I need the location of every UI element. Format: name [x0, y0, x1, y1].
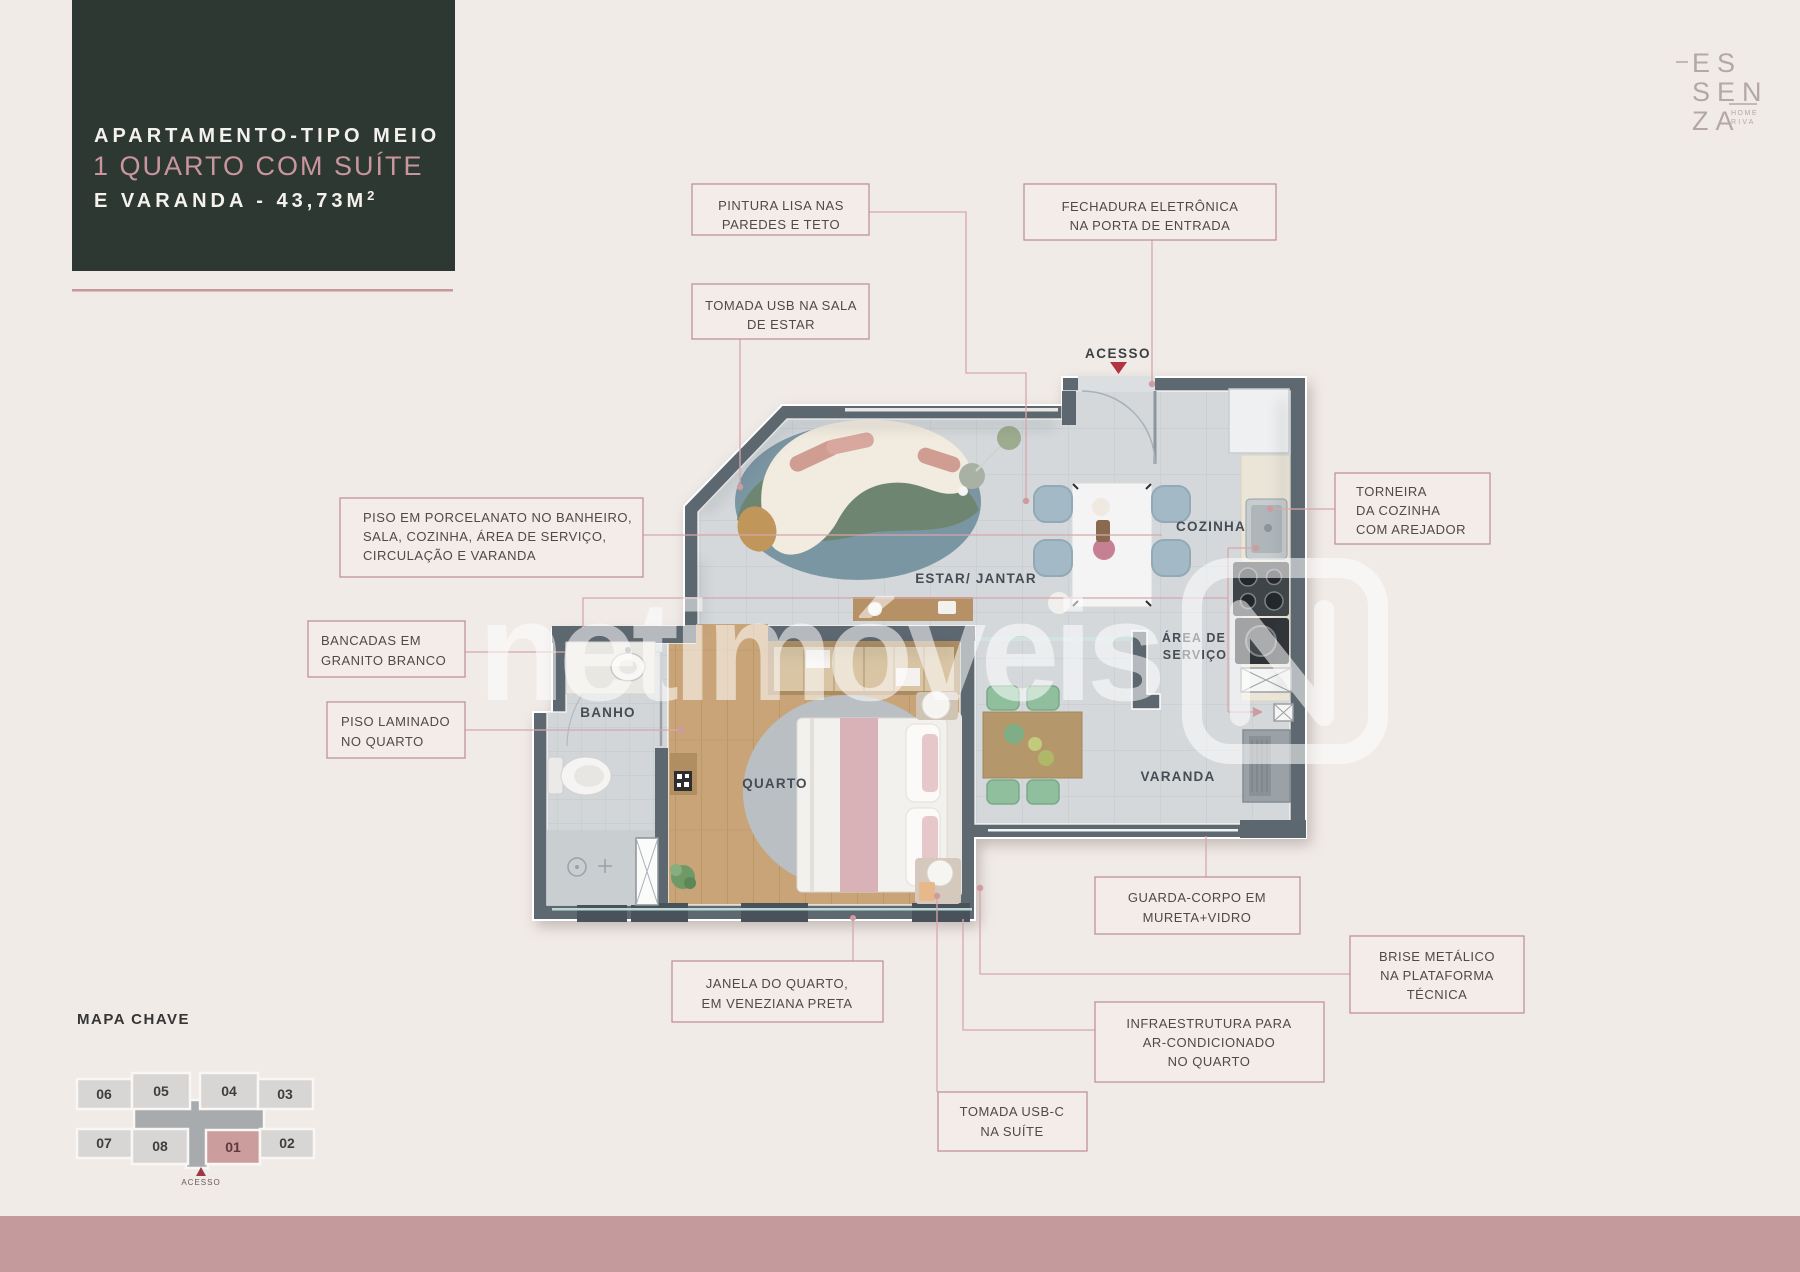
svg-text:NA PLATAFORMA: NA PLATAFORMA — [1380, 968, 1494, 983]
svg-text:TOMADA USB NA SALA: TOMADA USB NA SALA — [705, 298, 857, 313]
svg-text:TÉCNICA: TÉCNICA — [1407, 987, 1468, 1002]
svg-text:NO QUARTO: NO QUARTO — [341, 734, 424, 749]
svg-text:JANELA DO QUARTO,: JANELA DO QUARTO, — [706, 976, 848, 991]
svg-text:05: 05 — [153, 1083, 169, 1099]
svg-text:INFRAESTRUTURA PARA: INFRAESTRUTURA PARA — [1126, 1016, 1291, 1031]
svg-text:06: 06 — [96, 1086, 112, 1102]
svg-text:APARTAMENTO-TIPO MEIO: APARTAMENTO-TIPO MEIO — [94, 125, 440, 147]
svg-text:03: 03 — [277, 1086, 293, 1102]
svg-text:CIRCULAÇÃO E VARANDA: CIRCULAÇÃO E VARANDA — [363, 548, 536, 563]
svg-text:SEN: SEN — [1692, 77, 1769, 107]
svg-text:netimóveis: netimóveis — [478, 572, 1161, 731]
svg-text:1 QUARTO COM SUÍTE: 1 QUARTO COM SUÍTE — [93, 151, 424, 181]
svg-text:RIVA: RIVA — [1731, 119, 1756, 126]
svg-text:VARANDA: VARANDA — [1141, 769, 1216, 784]
svg-text:HOME: HOME — [1731, 110, 1758, 117]
svg-text:FECHADURA ELETRÔNICA: FECHADURA ELETRÔNICA — [1062, 199, 1239, 214]
svg-text:EM VENEZIANA PRETA: EM VENEZIANA PRETA — [701, 996, 852, 1011]
svg-text:02: 02 — [279, 1135, 295, 1151]
svg-text:AR-CONDICIONADO: AR-CONDICIONADO — [1143, 1035, 1275, 1050]
svg-text:ACESSO: ACESSO — [1085, 346, 1151, 361]
svg-text:01: 01 — [225, 1139, 241, 1155]
svg-text:PINTURA LISA NAS: PINTURA LISA NAS — [718, 198, 844, 213]
svg-text:GUARDA-CORPO EM: GUARDA-CORPO EM — [1128, 890, 1266, 905]
svg-text:04: 04 — [221, 1083, 237, 1099]
svg-text:GRANITO BRANCO: GRANITO BRANCO — [321, 653, 446, 668]
svg-text:ACESSO: ACESSO — [181, 1178, 220, 1187]
svg-text:08: 08 — [152, 1138, 168, 1154]
svg-text:E VARANDA - 43,73M2: E VARANDA - 43,73M2 — [94, 188, 378, 212]
svg-text:TORNEIRA: TORNEIRA — [1356, 484, 1427, 499]
svg-text:SALA, COZINHA, ÁREA DE SERVIÇO: SALA, COZINHA, ÁREA DE SERVIÇO, — [363, 529, 607, 544]
svg-text:NO QUARTO: NO QUARTO — [1168, 1054, 1251, 1069]
svg-text:ES: ES — [1692, 48, 1742, 78]
svg-text:PISO EM PORCELANATO NO BANHEIR: PISO EM PORCELANATO NO BANHEIRO, — [363, 510, 632, 525]
svg-text:COM AREJADOR: COM AREJADOR — [1356, 522, 1466, 537]
svg-text:NA PORTA DE ENTRADA: NA PORTA DE ENTRADA — [1070, 218, 1231, 233]
svg-text:07: 07 — [96, 1135, 112, 1151]
svg-text:MURETA+VIDRO: MURETA+VIDRO — [1143, 910, 1252, 925]
svg-text:DA COZINHA: DA COZINHA — [1356, 503, 1440, 518]
svg-text:QUARTO: QUARTO — [742, 776, 807, 791]
svg-text:BRISE METÁLICO: BRISE METÁLICO — [1379, 949, 1495, 964]
svg-text:NA SUÍTE: NA SUÍTE — [980, 1124, 1043, 1139]
svg-text:PISO LAMINADO: PISO LAMINADO — [341, 714, 450, 729]
svg-text:PAREDES E TETO: PAREDES E TETO — [722, 217, 840, 232]
svg-text:COZINHA: COZINHA — [1176, 519, 1246, 534]
svg-text:DE ESTAR: DE ESTAR — [747, 317, 815, 332]
svg-text:MAPA CHAVE: MAPA CHAVE — [77, 1011, 190, 1028]
svg-text:BANCADAS EM: BANCADAS EM — [321, 633, 421, 648]
svg-text:TOMADA USB-C: TOMADA USB-C — [960, 1104, 1065, 1119]
